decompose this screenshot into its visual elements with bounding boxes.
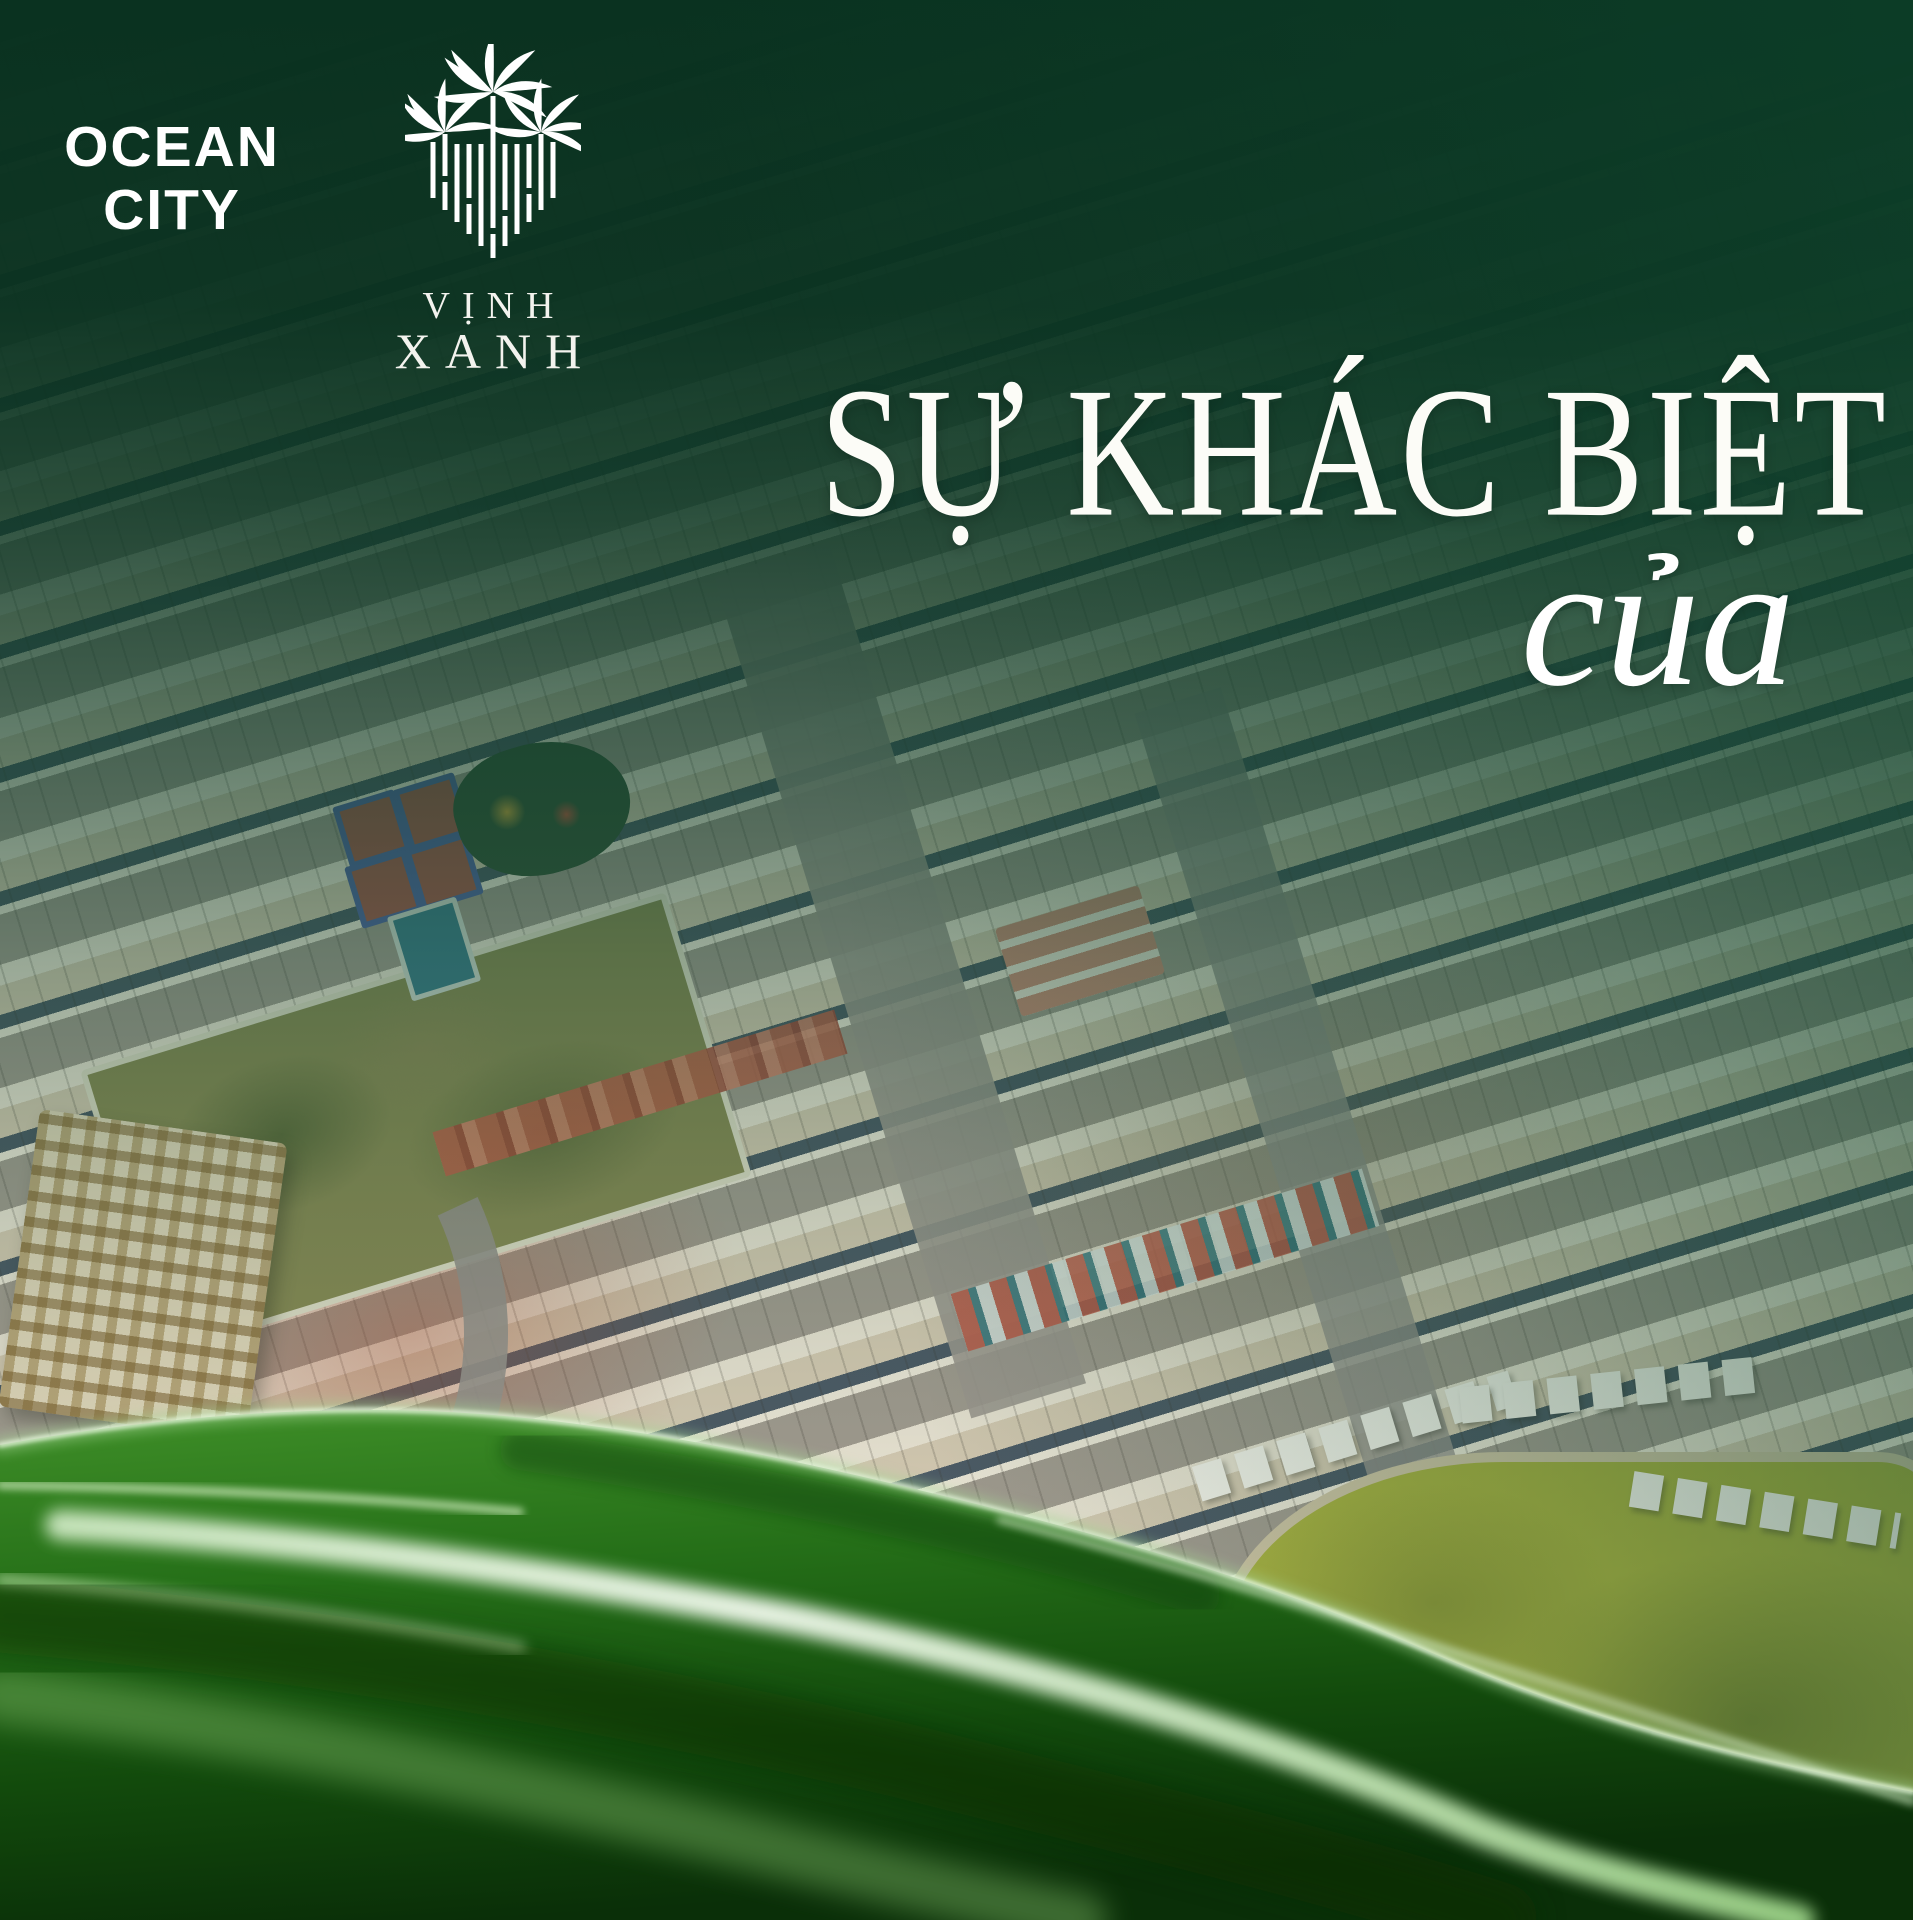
headline-script: của [1521, 512, 1795, 730]
ocean-city-logo-line1: OCEAN [52, 116, 292, 179]
ocean-city-logo: OCEAN CITY [52, 116, 292, 242]
poster: OCEAN CITY [0, 0, 1913, 1920]
ocean-city-logo-line2: CITY [52, 179, 292, 242]
palm-trees-bay-icon [405, 44, 581, 272]
vinh-xanh-logo-line2: XANH [360, 322, 616, 380]
glossy-wave-graphic [0, 1390, 1913, 1920]
